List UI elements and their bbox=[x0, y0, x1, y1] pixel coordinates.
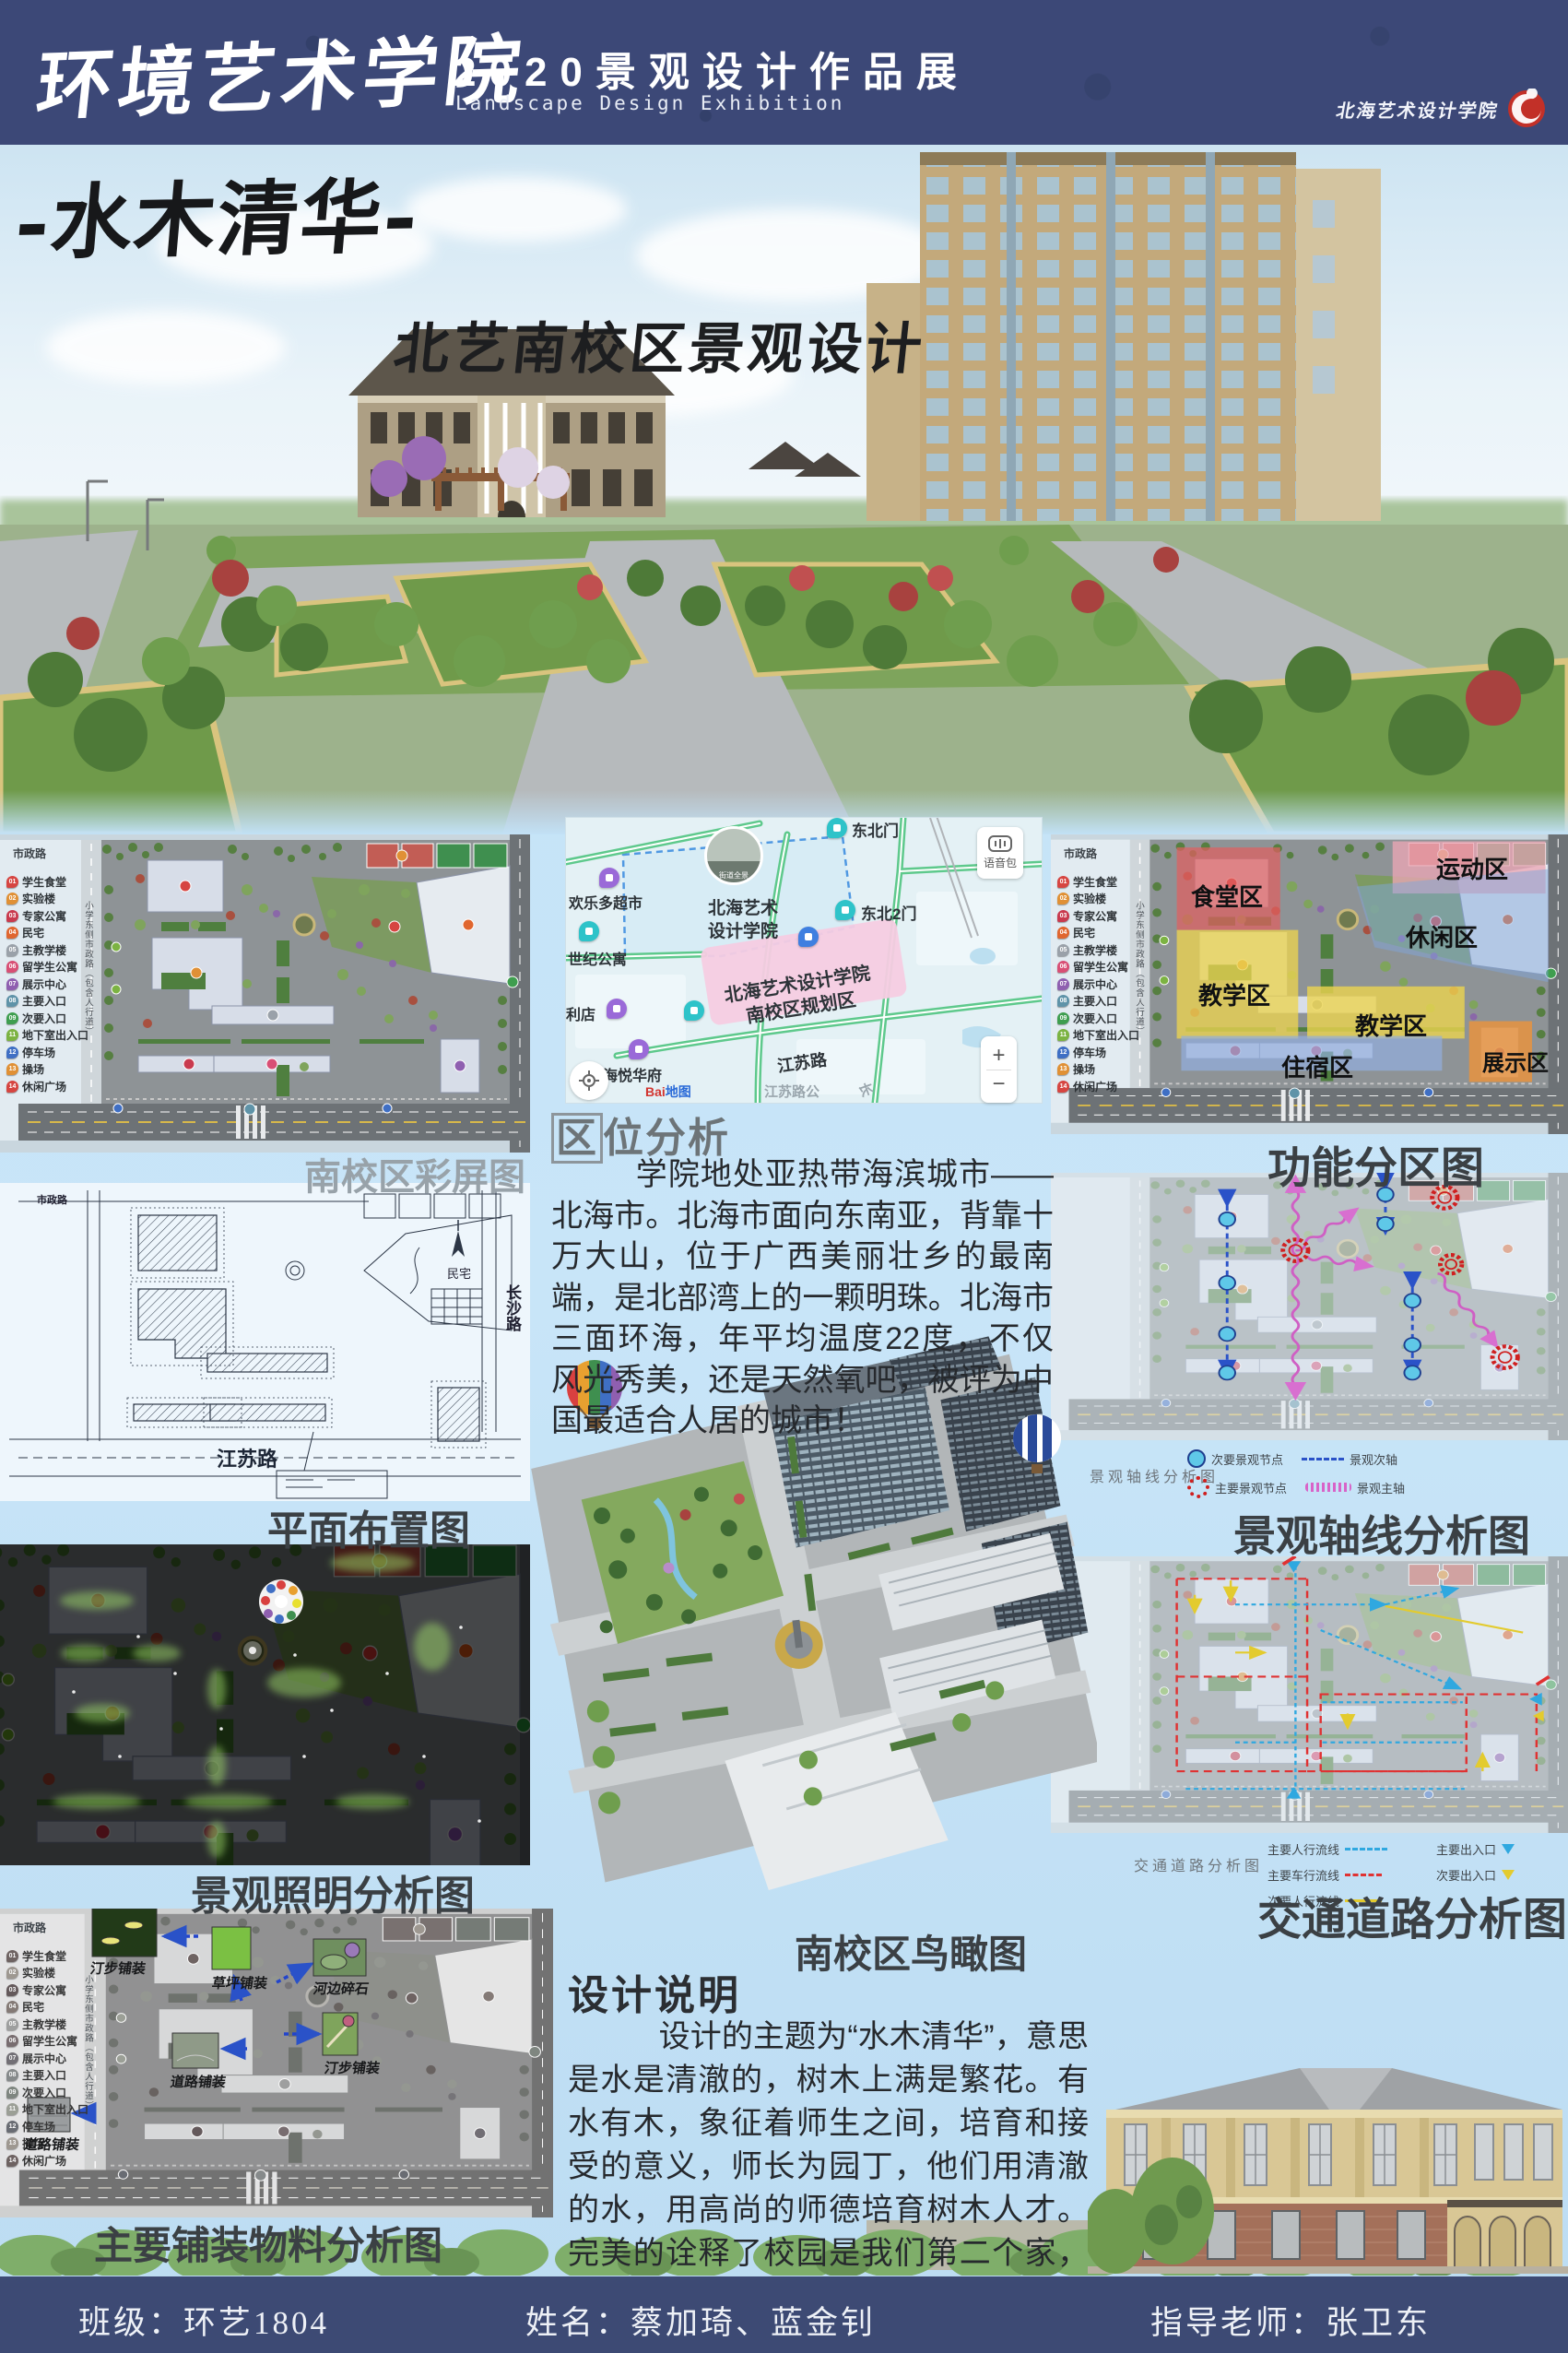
zone-sports: 运动区 bbox=[1436, 851, 1508, 885]
legend-row: 13操场 bbox=[6, 1063, 88, 1077]
legend-row: 01学生食堂 bbox=[6, 875, 88, 889]
location-body: 学院地处亚热带海滨城市——北海市。北海市面向东南亚，背靠十万大山，位于广西美丽壮… bbox=[551, 1154, 1054, 1442]
caption-lighting: 景观照明分析图 bbox=[0, 1862, 475, 1921]
zone-exhibition: 展示区 bbox=[1482, 1045, 1549, 1077]
legend-pin-icon: 12 bbox=[1057, 1046, 1069, 1058]
hero-title: -水木清华- bbox=[11, 151, 425, 276]
layout-area-label: 民宅 bbox=[447, 1264, 471, 1282]
legend-row: 03专家公寓 bbox=[6, 909, 88, 923]
road-label-top: 市政路 bbox=[13, 1920, 46, 1935]
legend-pin-icon: 11 bbox=[6, 1029, 18, 1041]
entry-minor-icon bbox=[1502, 1870, 1515, 1880]
panel-function-zones: 市政路 小学东侧市政路（包含人行道） 01学生食堂02实验楼03专家公寓04民宅… bbox=[1051, 834, 1568, 1134]
apartment-pin-icon[interactable] bbox=[579, 921, 599, 941]
entry-main-icon bbox=[1502, 1844, 1515, 1854]
locate-icon bbox=[579, 1070, 599, 1091]
legend-row: 12停车场 bbox=[1057, 1046, 1139, 1059]
legend-pin-icon: 13 bbox=[6, 2137, 18, 2149]
legend-pin-icon: 09 bbox=[6, 2087, 18, 2099]
paving-label-3: 河边碎石 bbox=[312, 1979, 371, 1998]
legend-pin-icon: 05 bbox=[1057, 944, 1069, 956]
legend-pin-icon: 08 bbox=[6, 2069, 18, 2081]
traffic-inner-caption: 交通道路分析图 bbox=[1134, 1853, 1263, 1875]
supermarket-pin-icon[interactable] bbox=[599, 868, 619, 888]
legend-pin-icon: 06 bbox=[6, 2035, 18, 2047]
legend-pin-icon: 12 bbox=[6, 2121, 18, 2133]
legend-pin-icon: 04 bbox=[6, 2001, 18, 2013]
legend-row: 03专家公寓 bbox=[1057, 909, 1139, 923]
logo-text: 北海艺术设计学院 bbox=[1334, 96, 1501, 123]
residence-pin-icon[interactable] bbox=[629, 1039, 649, 1059]
lighting-illustration bbox=[0, 1544, 530, 1865]
caption-site-plan: 南校区彩屏图 bbox=[0, 1147, 525, 1200]
legend-pin-icon: 04 bbox=[6, 927, 18, 939]
gate-ne-label: 东北门 bbox=[852, 818, 899, 841]
legend-row: 08主要入口 bbox=[6, 995, 88, 1009]
legend-pin-icon: 02 bbox=[6, 1967, 18, 1979]
apartment-label: 世纪公寓 bbox=[568, 947, 627, 969]
legend-pin-icon: 08 bbox=[1057, 995, 1069, 1007]
swirl-logo-icon bbox=[1506, 89, 1547, 129]
header-band: 环境艺术学院 2020景观设计作品展 Landscape Design Exhi… bbox=[0, 0, 1568, 145]
legend-row: 04民宅 bbox=[6, 927, 88, 940]
legend-pin-icon: 05 bbox=[6, 2018, 18, 2030]
zone-canteen: 食堂区 bbox=[1191, 879, 1263, 913]
legend-row: 13操场 bbox=[1057, 1063, 1139, 1077]
caption-paving: 主要铺装物料分析图 bbox=[0, 2215, 442, 2271]
school-map-label: 北海艺术设计学院 bbox=[704, 897, 782, 943]
caption-axis: 景观轴线分析图 bbox=[1051, 1503, 1530, 1564]
axis-illustration bbox=[1051, 1173, 1568, 1440]
panel-axis: 景观轴线分析图 次要景观节点 景观次轴 主要景观节点 景观主轴 bbox=[1051, 1173, 1568, 1503]
voice-icon bbox=[988, 835, 1012, 852]
site-plan-legend: 01学生食堂02实验楼03专家公寓04民宅05主教学楼06留学生公寓07展示中心… bbox=[6, 875, 88, 1094]
function-zones-legend: 01学生食堂02实验楼03专家公寓04民宅05主教学楼06留学生公寓07展示中心… bbox=[1057, 875, 1139, 1094]
paving-label-2: 草坪铺装 bbox=[211, 1973, 269, 1992]
caption-birdseye: 南校区鸟瞰图 bbox=[772, 1923, 1049, 1980]
panel-paving: 市政路 小学东侧市政路（包含人行道） 01学生食堂02实验楼03专家公寓04民宅… bbox=[0, 1909, 553, 2217]
home-pin-icon[interactable] bbox=[798, 927, 819, 947]
legend-pin-icon: 02 bbox=[6, 893, 18, 905]
legend-row: 14休闲广场 bbox=[1057, 1080, 1139, 1094]
gate-ne2-pin-icon[interactable] bbox=[835, 900, 855, 920]
gate-ne2-label: 东北2门 bbox=[861, 901, 916, 924]
locate-button[interactable] bbox=[570, 1061, 608, 1100]
legend-row: 05主教学楼 bbox=[6, 943, 88, 957]
legend-row: 02实验楼 bbox=[6, 1967, 88, 1981]
legend-pin-icon: 01 bbox=[1057, 876, 1069, 888]
traffic-illustration bbox=[1051, 1556, 1568, 1833]
major-axis-icon bbox=[1305, 1483, 1351, 1492]
balloon-night-icon bbox=[259, 1579, 303, 1624]
legend-row: 01学生食堂 bbox=[1057, 875, 1139, 889]
design-heading: 设计说明 bbox=[568, 1962, 741, 2021]
exhibition-title-en: Landscape Design Exhibition bbox=[455, 92, 844, 114]
caption-function-zones: 功能分区图 bbox=[1051, 1132, 1484, 1196]
legend-row: 09次要入口 bbox=[6, 2086, 88, 2099]
panel-lighting bbox=[0, 1544, 530, 1865]
poster-root: 环境艺术学院 2020景观设计作品展 Landscape Design Exhi… bbox=[0, 0, 1568, 2353]
zone-dorm: 住宿区 bbox=[1281, 1049, 1353, 1083]
road-label-top: 市政路 bbox=[1064, 845, 1097, 861]
legend-pin-icon: 09 bbox=[6, 1012, 18, 1024]
caption-traffic: 交通道路分析图 bbox=[1106, 1883, 1567, 1947]
legend-pin-icon: 06 bbox=[6, 961, 18, 973]
zoom-in-button[interactable]: + bbox=[992, 1042, 1005, 1070]
legend-pin-icon: 12 bbox=[6, 1046, 18, 1058]
footer-advisor: 指导老师：张卫东 bbox=[1150, 2297, 1431, 2344]
legend-row: 04民宅 bbox=[6, 2001, 88, 2015]
legend-pin-icon: 02 bbox=[1057, 893, 1069, 905]
legend-pin-icon: 09 bbox=[1057, 1012, 1069, 1024]
legend-row: 09次要入口 bbox=[1057, 1011, 1139, 1025]
zone-leisure: 休闲区 bbox=[1406, 919, 1478, 953]
minor-axis-icon bbox=[1302, 1458, 1344, 1460]
legend-pin-icon: 07 bbox=[6, 978, 18, 990]
axis-legend: 次要景观节点 景观次轴 主要景观节点 景观主轴 bbox=[1187, 1449, 1405, 1507]
legend-row: 02实验楼 bbox=[6, 893, 88, 906]
road-jiangsu-stop-label: 江苏路公 bbox=[764, 1082, 819, 1101]
legend-pin-icon: 03 bbox=[1057, 910, 1069, 922]
gate-ne-pin-icon[interactable] bbox=[827, 818, 847, 838]
legend-row: 07展示中心 bbox=[6, 977, 88, 991]
panel-layout-plan: 市政路 长沙路 江苏路 民宅 bbox=[0, 1183, 530, 1501]
legend-pin-icon: 03 bbox=[6, 1984, 18, 1996]
supermarket-label: 欢乐多超市 bbox=[569, 891, 643, 913]
legend-row: 03专家公寓 bbox=[6, 1983, 88, 1997]
paving-label-6: 道路铺装 bbox=[23, 2134, 81, 2154]
minor-node-icon bbox=[1187, 1449, 1206, 1468]
paving-label-1: 汀步铺装 bbox=[89, 1958, 147, 1978]
legend-row: 07展示中心 bbox=[6, 2051, 88, 2065]
legend-row: 08主要入口 bbox=[6, 2069, 88, 2083]
hero-subtitle: 北艺南校区景观设计 bbox=[390, 304, 929, 384]
zone-teaching-1: 教学区 bbox=[1198, 977, 1270, 1011]
legend-row: 11地下室出入口 bbox=[1057, 1029, 1139, 1043]
store-label: 利店 bbox=[566, 1002, 595, 1024]
legend-pin-icon: 03 bbox=[6, 910, 18, 922]
legend-pin-icon: 13 bbox=[1057, 1063, 1069, 1075]
panel-traffic: 交通道路分析图 主要人行流线 主要车行流线 次要人行流线 主要出入口 次要出入口 bbox=[1051, 1556, 1568, 1888]
paving-label-5: 汀步铺装 bbox=[324, 2058, 382, 2077]
legend-pin-icon: 05 bbox=[6, 944, 18, 956]
footer-band: 班级：环艺1804 姓名：蔡加琦、蓝金钊 指导老师：张卫东 bbox=[0, 2276, 1568, 2353]
panel-site-plan: 市政路 小学东侧市政路（包含人行道） 01学生食堂02实验楼03专家公寓04民宅… bbox=[0, 834, 530, 1153]
college-pin-icon[interactable] bbox=[684, 1000, 704, 1021]
exhibition-title-cn: 2020景观设计作品展 bbox=[454, 39, 970, 98]
legend-row: 05主教学楼 bbox=[1057, 943, 1139, 957]
legend-pin-icon: 07 bbox=[1057, 978, 1069, 990]
store-pin-icon[interactable] bbox=[607, 999, 627, 1019]
legend-row: 11地下室出入口 bbox=[6, 2103, 88, 2117]
legend-pin-icon: 01 bbox=[6, 876, 18, 888]
legend-pin-icon: 14 bbox=[6, 2155, 18, 2167]
road-label-top: 市政路 bbox=[13, 845, 46, 861]
legend-row: 06留学生公寓 bbox=[1057, 961, 1139, 975]
legend-pin-icon: 11 bbox=[6, 2103, 18, 2115]
footer-class: 班级：环艺1804 bbox=[78, 2297, 329, 2344]
legend-row: 04民宅 bbox=[1057, 927, 1139, 940]
legend-row: 12停车场 bbox=[6, 2120, 88, 2134]
legend-row: 06留学生公寓 bbox=[6, 961, 88, 975]
ped-main-icon bbox=[1345, 1848, 1387, 1850]
zone-teaching-2: 教学区 bbox=[1355, 1008, 1427, 1042]
legend-pin-icon: 07 bbox=[6, 2052, 18, 2064]
caption-layout-plan: 平面布置图 bbox=[0, 1497, 470, 1556]
legend-pin-icon: 13 bbox=[6, 1063, 18, 1075]
legend-pin-icon: 04 bbox=[1057, 927, 1069, 939]
legend-row: 14休闲广场 bbox=[6, 1080, 88, 1094]
voice-package-button[interactable]: 语音包 bbox=[977, 827, 1023, 879]
building-elevation-render bbox=[1088, 1981, 1568, 2274]
school-logo: 北海艺术设计学院 bbox=[1337, 89, 1547, 129]
legend-row: 11地下室出入口 bbox=[6, 1029, 88, 1043]
legend-row: 01学生食堂 bbox=[6, 1949, 88, 1963]
legend-row: 07展示中心 bbox=[1057, 977, 1139, 991]
paving-label-4: 道路铺装 bbox=[170, 2072, 228, 2091]
legend-row: 02实验楼 bbox=[1057, 893, 1139, 906]
map-brand: Bai地图 bbox=[645, 1082, 691, 1101]
location-map: 街道全景 东北门 东北2门 欢乐多超市 世纪公寓 利店 海悦华府 北海艺术设计学… bbox=[566, 818, 1042, 1103]
legend-row: 14休闲广场 bbox=[6, 2154, 88, 2168]
footer-names: 姓名：蔡加琦、蓝金钊 bbox=[525, 2297, 876, 2344]
legend-row: 09次要入口 bbox=[6, 1011, 88, 1025]
veh-main-icon bbox=[1345, 1874, 1382, 1876]
legend-row: 05主教学楼 bbox=[6, 2017, 88, 2031]
legend-pin-icon: 14 bbox=[6, 1081, 18, 1093]
zoom-out-button[interactable]: − bbox=[992, 1070, 1005, 1098]
legend-pin-icon: 01 bbox=[6, 1950, 18, 1962]
map-zoom-control: + − bbox=[981, 1036, 1017, 1103]
legend-row: 08主要入口 bbox=[1057, 995, 1139, 1009]
legend-row: 12停车场 bbox=[6, 1046, 88, 1059]
legend-pin-icon: 08 bbox=[6, 995, 18, 1007]
major-node-icon bbox=[1187, 1476, 1209, 1498]
legend-row: 06留学生公寓 bbox=[6, 2035, 88, 2049]
legend-pin-icon: 11 bbox=[1057, 1029, 1069, 1041]
street-panorama-bubble[interactable]: 街道全景 bbox=[704, 826, 763, 885]
legend-pin-icon: 06 bbox=[1057, 961, 1069, 973]
legend-pin-icon: 14 bbox=[1057, 1081, 1069, 1093]
layout-road-bottom: 江苏路 bbox=[217, 1443, 277, 1472]
